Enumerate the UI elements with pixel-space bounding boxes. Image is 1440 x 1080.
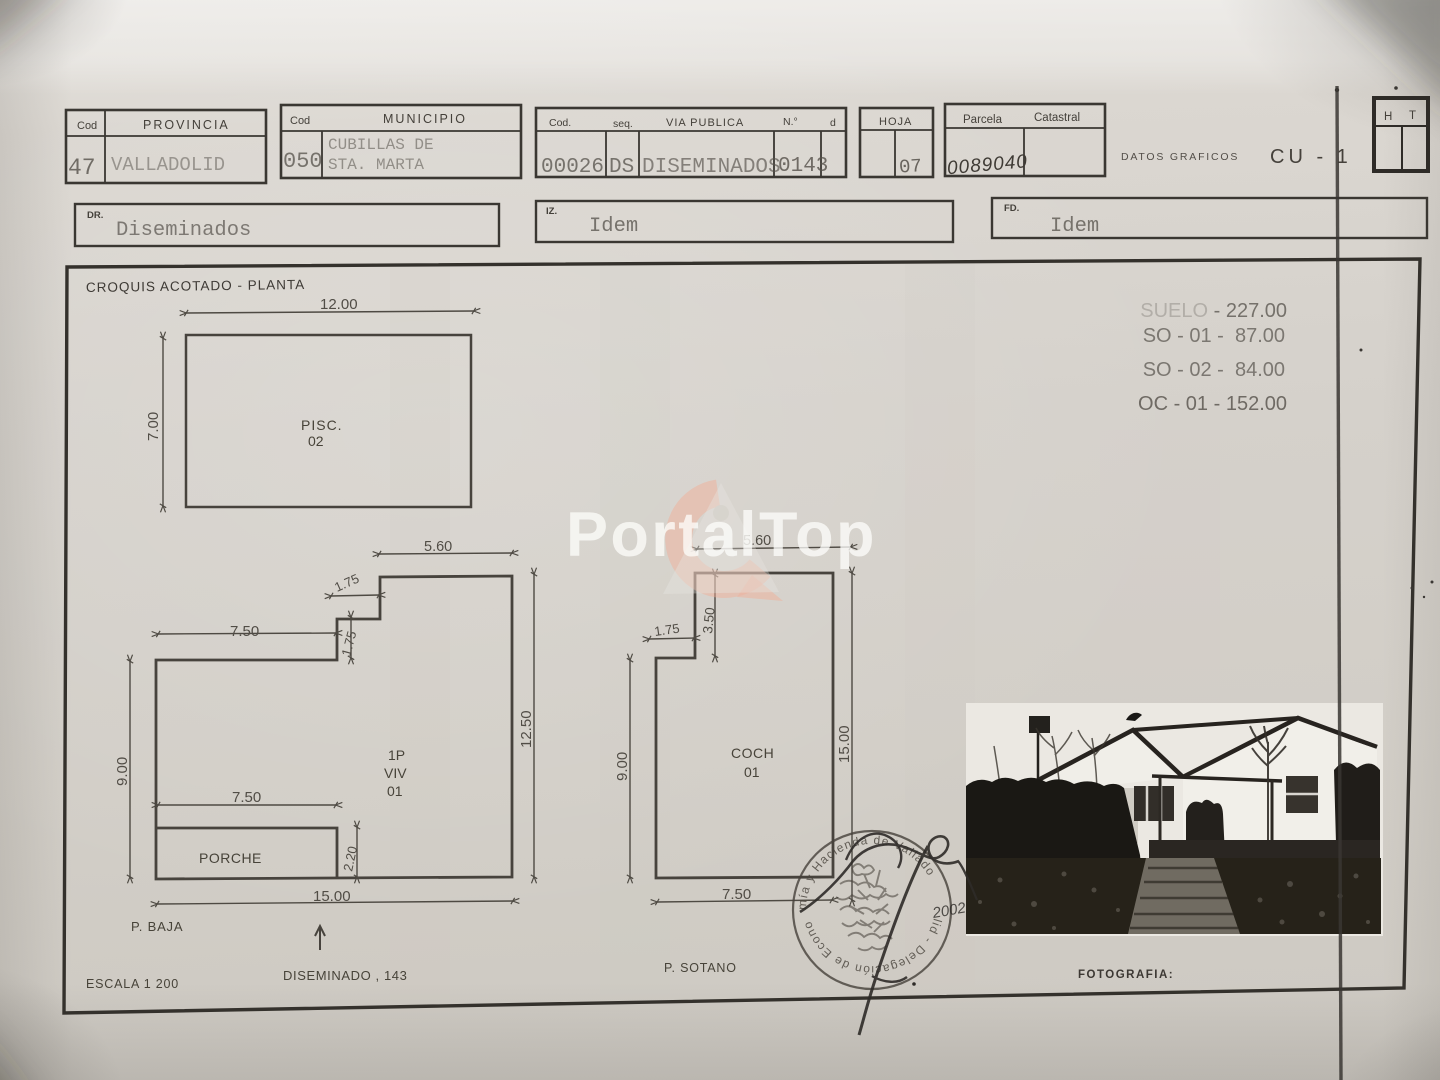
svg-text:PORCHE: PORCHE	[199, 850, 262, 866]
svg-text:5.60: 5.60	[424, 539, 452, 555]
svg-text:SO - 02 - 84.00: SO - 02 - 84.00	[1143, 359, 1285, 381]
svg-text:7.50: 7.50	[230, 623, 259, 640]
svg-text:12.50: 12.50	[518, 710, 535, 748]
svg-text:MUNICIPIO: MUNICIPIO	[383, 112, 467, 126]
svg-text:IZ.: IZ.	[546, 206, 557, 217]
svg-text:Parcela: Parcela	[963, 114, 1003, 126]
svg-text:00026: 00026	[541, 156, 604, 179]
svg-text:COCH: COCH	[731, 745, 774, 761]
svg-text:1.75: 1.75	[653, 621, 680, 639]
svg-text:7.50: 7.50	[232, 789, 261, 806]
svg-text:Cod: Cod	[290, 115, 310, 127]
svg-text:d: d	[830, 117, 836, 129]
svg-text:12.00: 12.00	[320, 296, 358, 313]
svg-text:02: 02	[308, 433, 324, 449]
svg-text:Idem: Idem	[589, 215, 638, 238]
svg-text:15.00: 15.00	[313, 888, 351, 905]
svg-text:DS: DS	[609, 156, 634, 179]
svg-text:T: T	[1409, 110, 1416, 122]
svg-text:DATOS GRAFICOS: DATOS GRAFICOS	[1121, 151, 1239, 163]
svg-text:H: H	[1384, 111, 1392, 123]
svg-text:STA. MARTA: STA. MARTA	[328, 156, 424, 174]
svg-text:1P: 1P	[388, 747, 405, 763]
svg-text:DISEMINADOS: DISEMINADOS	[642, 156, 781, 179]
svg-text:OC - 01 - 152.00: OC - 01 - 152.00	[1138, 393, 1287, 415]
svg-text:9.00: 9.00	[114, 757, 131, 786]
svg-text:7.50: 7.50	[722, 886, 751, 903]
svg-text:seq.: seq.	[613, 118, 633, 130]
svg-text:SUELO - 227.00: SUELO - 227.00	[1140, 300, 1287, 322]
svg-text:CU - 1: CU - 1	[1270, 146, 1352, 168]
svg-text:HOJA: HOJA	[879, 116, 912, 128]
svg-text:FOTOGRAFIA:: FOTOGRAFIA:	[1078, 969, 1174, 981]
svg-text:SO - 01 - 87.00: SO - 01 - 87.00	[1143, 325, 1285, 347]
svg-text:07: 07	[898, 155, 922, 179]
svg-text:0143: 0143	[778, 155, 828, 178]
svg-text:7.00: 7.00	[145, 412, 162, 441]
svg-text:PROVINCIA: PROVINCIA	[143, 118, 230, 132]
svg-text:050: 050	[283, 149, 323, 174]
svg-text:47: 47	[68, 155, 96, 181]
svg-text:N.°: N.°	[783, 116, 798, 128]
svg-text:VIA PUBLICA: VIA PUBLICA	[666, 117, 744, 129]
svg-text:DR.: DR.	[87, 210, 103, 221]
svg-text:ESCALA 1 200: ESCALA 1 200	[86, 977, 179, 991]
svg-text:9.00: 9.00	[614, 752, 631, 781]
svg-text:P. BAJA: P. BAJA	[131, 919, 183, 934]
svg-text:Diseminados: Diseminados	[116, 219, 251, 242]
svg-text:PISC.: PISC.	[301, 417, 343, 433]
svg-text:DISEMINADO , 143: DISEMINADO , 143	[283, 968, 407, 983]
svg-text:Catastral: Catastral	[1034, 112, 1080, 124]
svg-text:15.00: 15.00	[836, 725, 853, 763]
svg-text:Cod.: Cod.	[549, 117, 571, 129]
svg-text:1.75: 1.75	[332, 571, 361, 595]
svg-text:Idem: Idem	[1050, 215, 1099, 238]
svg-text:PortalTop: PortalTop	[566, 500, 877, 570]
svg-text:01: 01	[387, 783, 403, 799]
svg-text:3.50: 3.50	[700, 607, 718, 635]
svg-text:1.75: 1.75	[338, 629, 359, 657]
svg-text:CROQUIS ACOTADO - PLANTA: CROQUIS ACOTADO - PLANTA	[86, 277, 305, 295]
svg-text:VIV: VIV	[384, 765, 407, 781]
svg-text:01: 01	[744, 764, 760, 780]
svg-text:FD.: FD.	[1004, 203, 1019, 214]
svg-text:VALLADOLID: VALLADOLID	[111, 154, 225, 176]
svg-text:P. SOTANO: P. SOTANO	[664, 961, 737, 975]
svg-text:CUBILLAS DE: CUBILLAS DE	[328, 136, 434, 154]
svg-text:Cod: Cod	[77, 120, 97, 132]
